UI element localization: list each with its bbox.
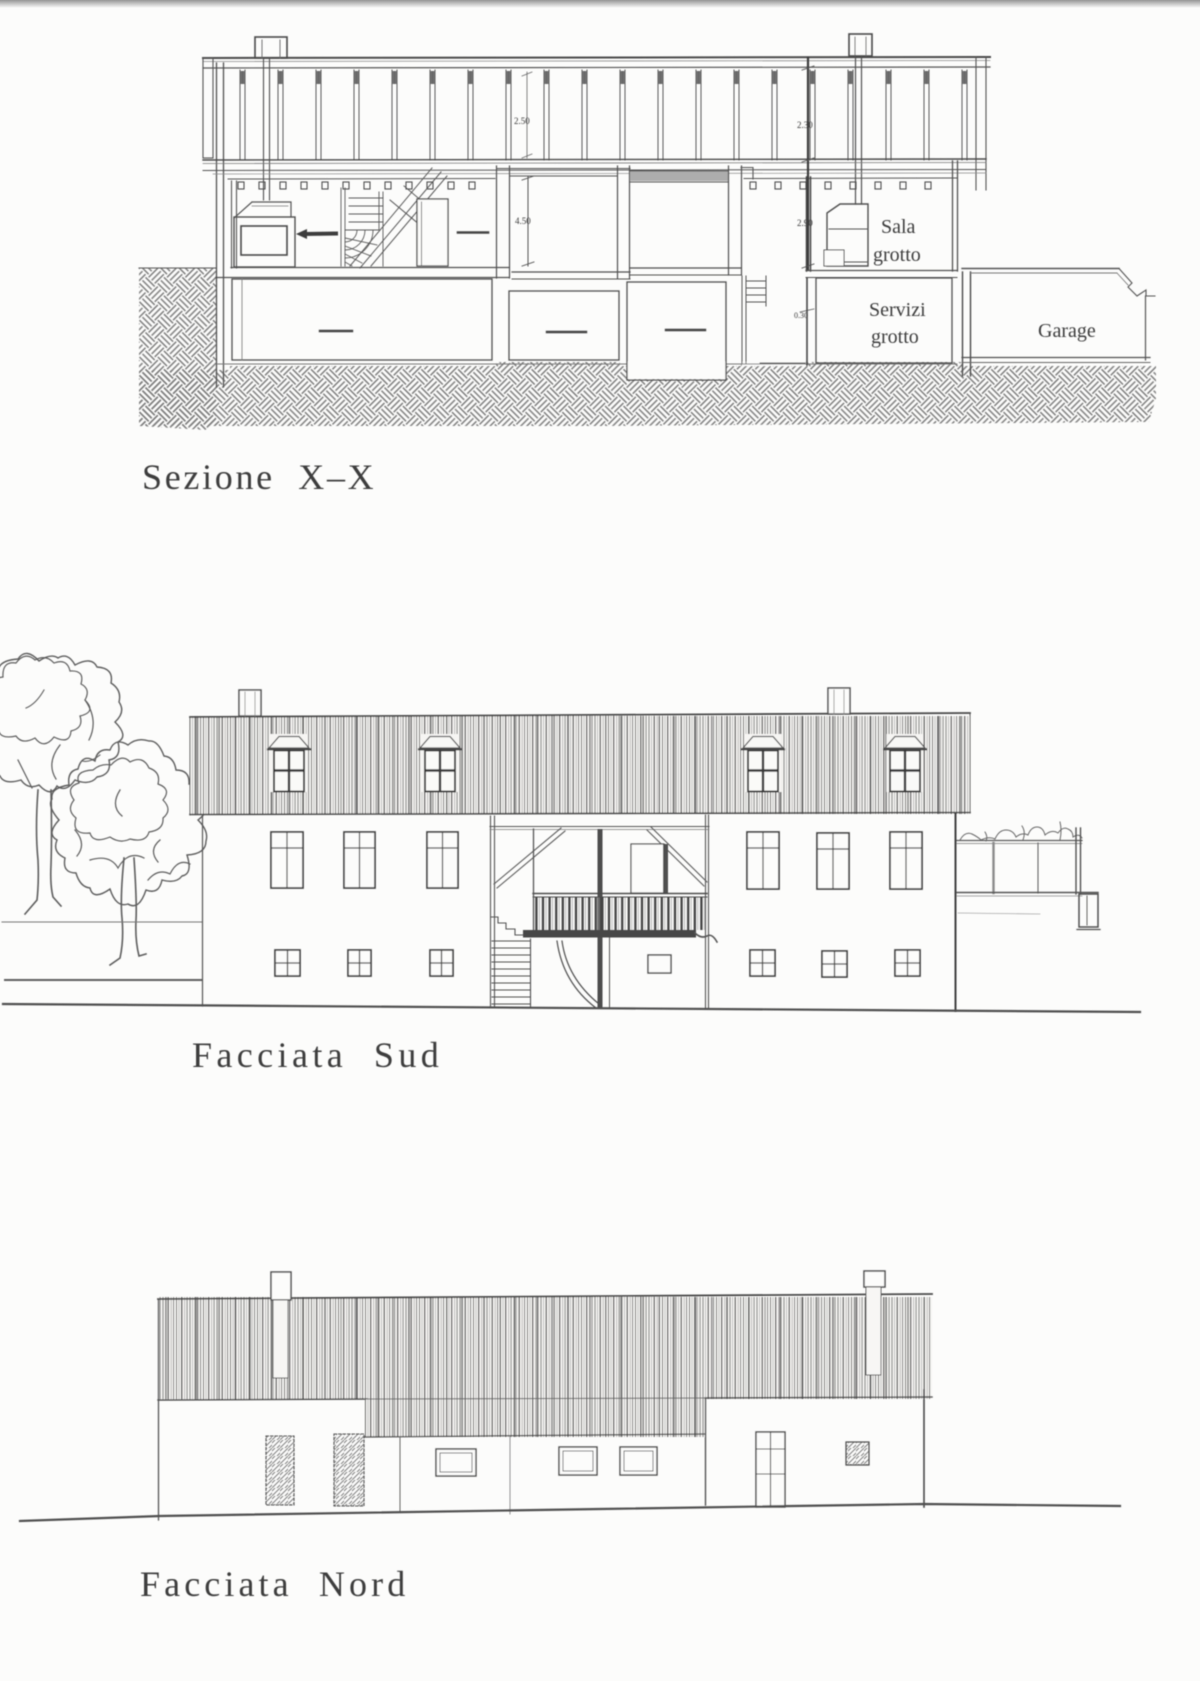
svg-text:grotto: grotto [873, 244, 921, 266]
svg-text:Facciata Nord: Facciata Nord [140, 1564, 409, 1604]
svg-text:Facciata Sud: Facciata Sud [192, 1035, 443, 1075]
svg-text:2.50: 2.50 [514, 116, 530, 126]
svg-text:grotto: grotto [871, 326, 919, 348]
svg-text:4.50: 4.50 [515, 216, 531, 226]
svg-text:Servizi: Servizi [869, 299, 926, 321]
svg-text:Sezione X–X: Sezione X–X [142, 457, 376, 497]
svg-text:0.30: 0.30 [794, 311, 808, 320]
svg-text:2.30: 2.30 [797, 120, 813, 130]
svg-text:Sala: Sala [881, 216, 916, 238]
svg-text:Garage: Garage [1038, 320, 1096, 342]
